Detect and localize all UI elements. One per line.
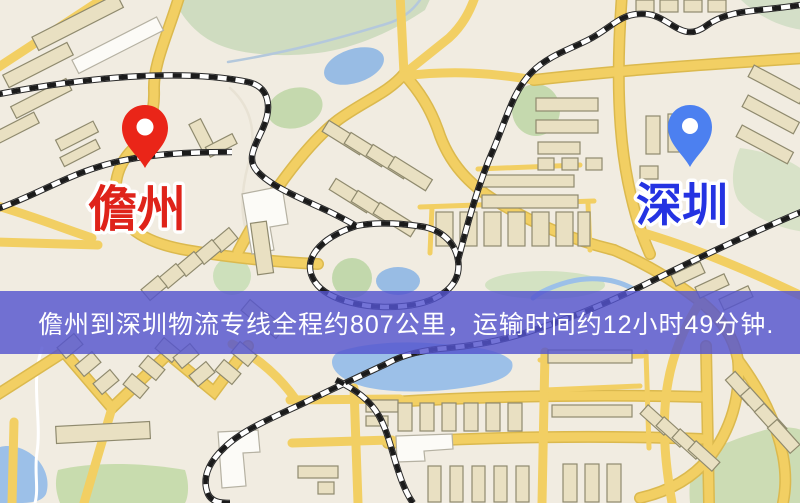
map-background: 儋州 深圳 xyxy=(0,0,800,503)
route-banner-text: 儋州到深圳物流专线全程约807公里，运输时间约12小时49分钟. xyxy=(38,305,774,341)
map-image: 儋州 深圳 儋州到深圳物流专线全程约807公里，运输时间约12小时49分钟. xyxy=(0,0,800,503)
city-label-shenzhen: 深圳 xyxy=(636,180,728,231)
city-label-danzhou: 儋州 xyxy=(88,182,186,237)
route-banner: 儋州到深圳物流专线全程约807公里，运输时间约12小时49分钟. xyxy=(0,291,800,354)
